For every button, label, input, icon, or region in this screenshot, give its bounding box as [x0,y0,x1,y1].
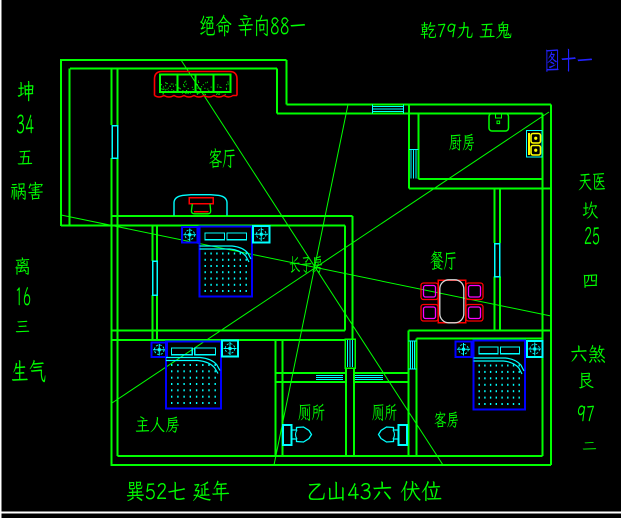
svg-text:厕所: 厕所 [372,400,397,425]
svg-text:主人房: 主人房 [135,413,180,437]
svg-text:乾79九 五鬼: 乾79九 五鬼 [420,18,512,43]
svg-text:餐厅: 餐厅 [430,246,457,274]
svg-text:25: 25 [584,219,600,251]
svg-text:五: 五 [17,145,33,170]
svg-text:16: 16 [15,280,31,313]
svg-text:97: 97 [577,399,595,428]
svg-text:坤: 坤 [17,77,35,106]
svg-text:离: 离 [14,254,31,279]
svg-text:图十一: 图十一 [544,44,593,78]
svg-text:34: 34 [16,107,34,141]
svg-text:厨房: 厨房 [449,130,475,155]
svg-text:二: 二 [582,437,597,455]
svg-text:长子房: 长子房 [289,252,323,277]
svg-text:三: 三 [15,315,30,338]
svg-text:天医: 天医 [578,167,606,195]
svg-text:客房: 客房 [434,408,459,432]
svg-text:绝命 辛向88一: 绝命 辛向88一 [199,10,306,41]
svg-text:乙山43六 伏位: 乙山43六 伏位 [305,477,442,506]
svg-text:艮: 艮 [577,368,594,393]
svg-text:巽52七 延年: 巽52七 延年 [126,477,230,506]
svg-text:六煞: 六煞 [570,340,606,367]
svg-text:四: 四 [582,268,599,293]
svg-text:生气: 生气 [11,355,46,388]
svg-text:客厅: 客厅 [209,144,237,173]
svg-text:厕所: 厕所 [298,400,325,425]
svg-text:祸害: 祸害 [10,177,44,204]
